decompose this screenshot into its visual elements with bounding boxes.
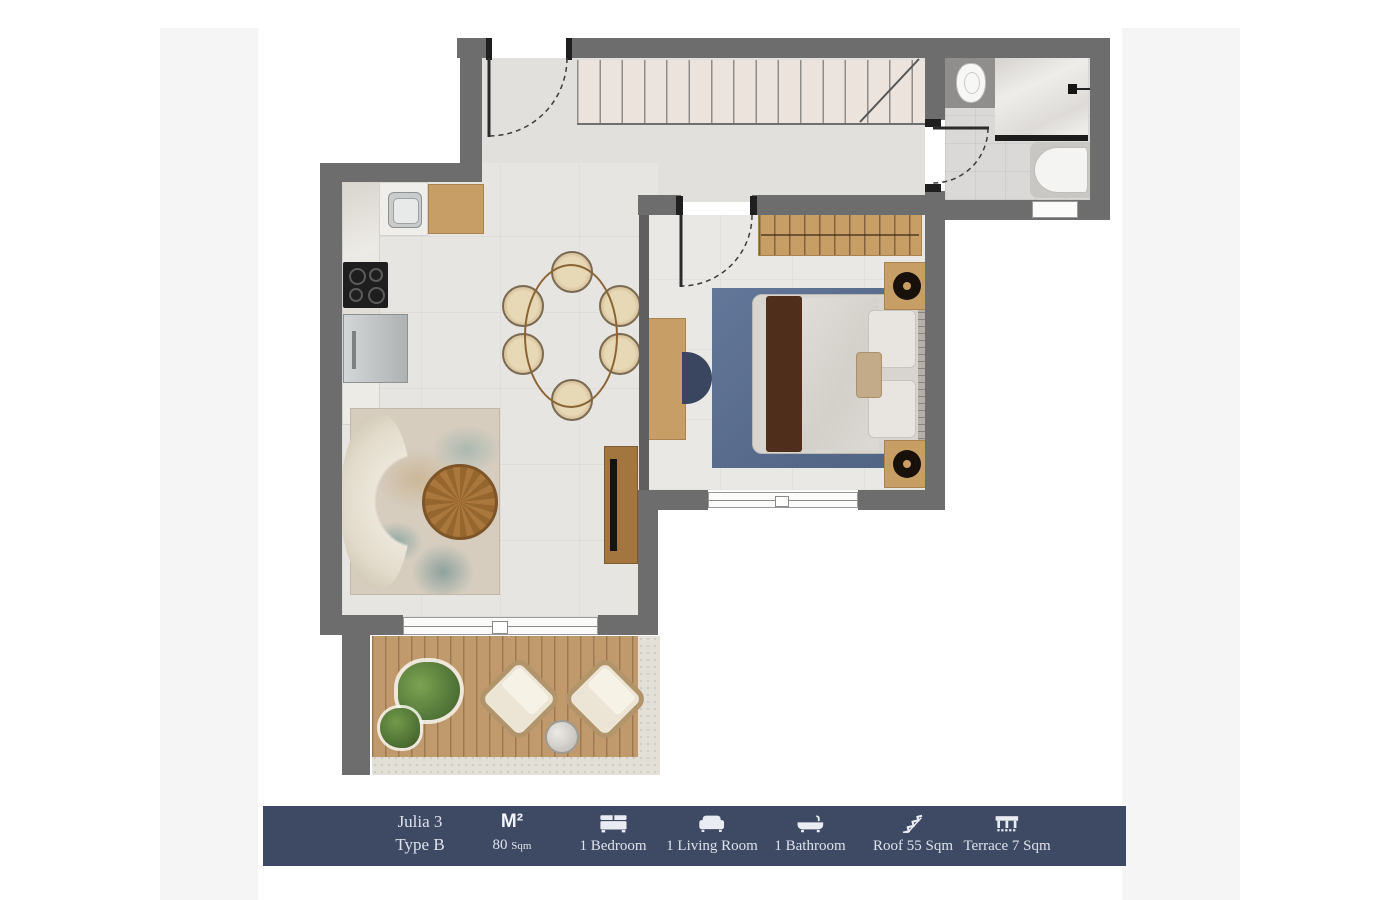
bathroom-door-arc [933,128,988,183]
area-unit: Sqm [511,840,531,852]
area-value: 80 [493,837,508,853]
feature-label: 1 Living Room [666,837,758,855]
feature-terrace: Terrace 7 Sqm [963,813,1050,855]
area-value-line: 80 Sqm [493,836,532,855]
unit-name-block: Julia 3 Type B [395,812,444,854]
bedroom-door-arc [681,215,752,286]
entry-door-arc [489,58,567,136]
feature-label: Roof 55 Sqm [873,837,953,855]
feature-bedroom: 1 Bedroom [579,813,646,855]
terrace-icon [963,813,1050,833]
feature-bathroom: 1 Bathroom [774,813,845,855]
bathtub-icon [774,813,845,833]
roof-stairs-icon [873,813,953,833]
feature-label: 1 Bathroom [774,837,845,855]
bed-icon [579,813,646,833]
sofa-icon [666,813,758,833]
feature-label: Terrace 7 Sqm [963,837,1050,855]
area-block: M² 80 Sqm [493,812,532,855]
feature-label: 1 Bedroom [579,837,646,855]
floor-plan-page: Julia 3 Type B M² 80 Sqm 1 Bedroom [0,0,1400,900]
feature-living-room: 1 Living Room [666,813,758,855]
plan-annotations [0,0,1400,900]
area-symbol: M² [493,812,532,832]
feature-roof: Roof 55 Sqm [873,813,953,855]
stair-diagonal-line [860,59,919,122]
unit-type: Type B [395,836,444,854]
legend-bar: Julia 3 Type B M² 80 Sqm 1 Bedroom [263,806,1126,866]
unit-name: Julia 3 [395,812,444,832]
